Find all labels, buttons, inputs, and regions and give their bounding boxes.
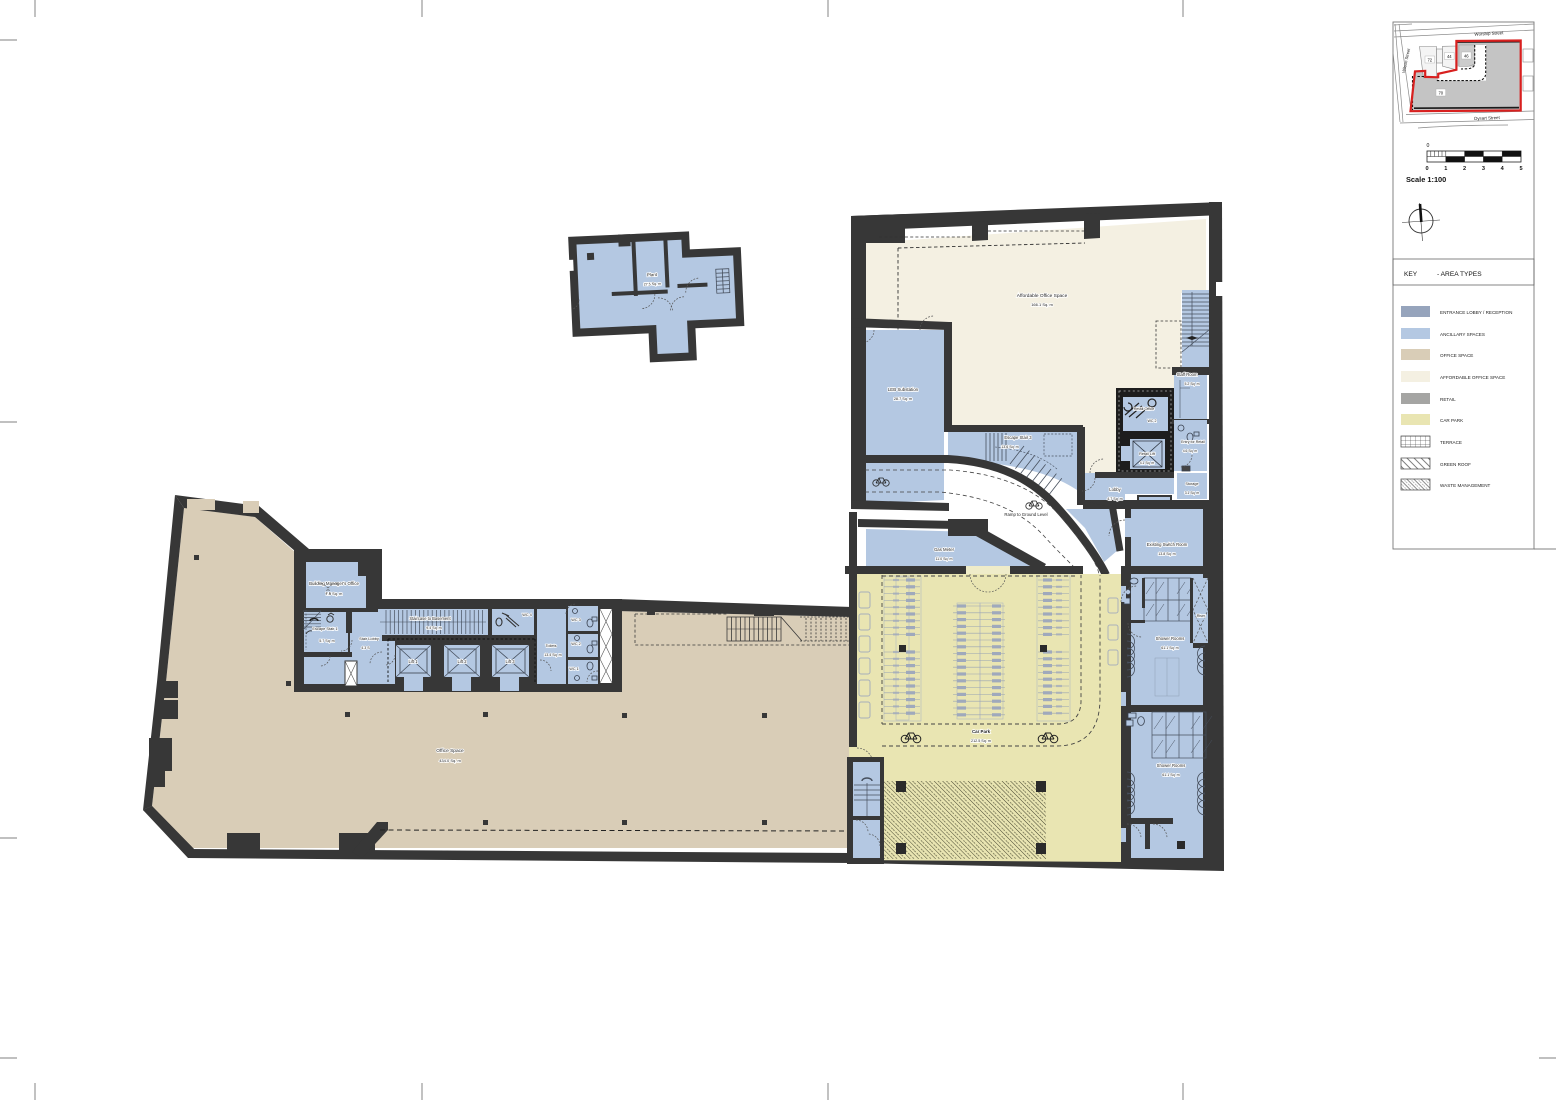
svg-text:70: 70: [1438, 91, 1443, 96]
svg-text:Lobby: Lobby: [1109, 487, 1121, 492]
svg-text:9.4 Sq. m: 9.4 Sq. m: [426, 626, 441, 630]
svg-text:AFFORDABLE OFFICE SPACE: AFFORDABLE OFFICE SPACE: [1440, 375, 1505, 380]
svg-text:28.7 Sq. m: 28.7 Sq. m: [894, 397, 912, 401]
svg-text:CAR PARK: CAR PARK: [1440, 418, 1464, 423]
svg-text:0: 0: [1427, 143, 1430, 149]
svg-text:WC 1: WC 1: [569, 667, 579, 671]
svg-text:Stair Lobby: Stair Lobby: [359, 636, 379, 641]
svg-text:0: 0: [1425, 166, 1428, 172]
svg-text:Retail Office: Retail Office: [1134, 407, 1155, 411]
svg-text:LEB Substation: LEB Substation: [888, 387, 919, 392]
svg-text:Existing Switch Room: Existing Switch Room: [1147, 542, 1188, 547]
svg-text:Escape Stair 3: Escape Stair 3: [1004, 435, 1032, 440]
svg-text:61.1 Sq. m: 61.1 Sq. m: [1161, 646, 1178, 650]
svg-text:Entry for Retail: Entry for Retail: [1181, 440, 1205, 444]
svg-text:Office Space: Office Space: [436, 748, 464, 754]
svg-text:Shower Rooms: Shower Rooms: [1156, 636, 1185, 641]
svg-text:13.8 Sq. m: 13.8 Sq. m: [1158, 552, 1175, 556]
svg-text:61.1 Sq. m: 61.1 Sq. m: [1162, 773, 1179, 777]
svg-text:OFFICE SPACE: OFFICE SPACE: [1440, 353, 1473, 358]
svg-text:13.6 Sq. m: 13.6 Sq. m: [1001, 445, 1018, 449]
svg-text:434.0 Sq. m: 434.0 Sq. m: [439, 758, 461, 763]
svg-text:Plant: Plant: [647, 272, 658, 277]
svg-text:166.1 Sq. m: 166.1 Sq. m: [1031, 302, 1053, 307]
svg-text:3: 3: [1482, 166, 1485, 172]
svg-text:4.1 Sq. m: 4.1 Sq. m: [1140, 461, 1155, 465]
svg-text:Escape Stair 1: Escape Stair 1: [312, 626, 337, 631]
svg-text:- AREA TYPES: - AREA TYPES: [1437, 271, 1482, 278]
svg-text:KEY: KEY: [1404, 271, 1418, 278]
svg-text:46: 46: [1464, 54, 1469, 59]
svg-text:WC 4: WC 4: [522, 613, 532, 617]
svg-text:5: 5: [1519, 166, 1522, 172]
svg-text:Toilets: Toilets: [545, 643, 556, 648]
svg-text:Riser: Riser: [1197, 614, 1206, 618]
svg-text:Car Park: Car Park: [972, 729, 991, 734]
svg-text:Lift 2: Lift 2: [457, 659, 467, 664]
svg-text:Shower Rooms: Shower Rooms: [1157, 763, 1186, 768]
svg-text:4.6 Sq. m: 4.6 Sq. m: [1183, 449, 1198, 453]
svg-text:27.5 Sq. m: 27.5 Sq. m: [644, 282, 662, 287]
svg-text:Ramp to Ground Level: Ramp to Ground Level: [1004, 512, 1047, 517]
svg-text:212.5 Sq. m: 212.5 Sq. m: [971, 739, 991, 743]
svg-text:Storage: Storage: [1185, 482, 1198, 486]
svg-text:Retail Lift: Retail Lift: [1139, 452, 1156, 456]
svg-text:Scale 1:100: Scale 1:100: [1406, 175, 1446, 184]
svg-text:ANCILLARY SPACES: ANCILLARY SPACES: [1440, 332, 1485, 337]
svg-text:GREEN ROOF: GREEN ROOF: [1440, 462, 1471, 467]
svg-text:3.1 Sq. m: 3.1 Sq. m: [1185, 491, 1200, 495]
svg-text:44: 44: [1447, 54, 1452, 59]
svg-text:WC 2: WC 2: [1148, 419, 1157, 423]
svg-text:4.7 Sq. m: 4.7 Sq. m: [1107, 497, 1122, 501]
svg-text:13.4 Sq. m: 13.4 Sq. m: [544, 653, 561, 657]
svg-text:11.0 Sq. m: 11.0 Sq. m: [935, 557, 952, 561]
svg-text:72: 72: [1427, 58, 1432, 63]
svg-text:WASTE MANAGEMENT: WASTE MANAGEMENT: [1440, 483, 1491, 488]
svg-text:RETAIL: RETAIL: [1440, 397, 1456, 402]
svg-text:TERRACE: TERRACE: [1440, 440, 1462, 445]
svg-text:Staircase to Basement: Staircase to Basement: [409, 616, 451, 621]
svg-text:WC 2: WC 2: [571, 642, 581, 646]
svg-text:Lift 1: Lift 1: [408, 659, 418, 664]
svg-text:Lift 3: Lift 3: [505, 659, 515, 664]
svg-text:1: 1: [1444, 166, 1447, 172]
svg-text:Dysart Street: Dysart Street: [1474, 115, 1501, 121]
svg-text:2: 2: [1463, 166, 1466, 172]
svg-text:Affordable Office Space: Affordable Office Space: [1017, 293, 1068, 299]
svg-text:7.5 Sq. m: 7.5 Sq. m: [326, 591, 343, 596]
svg-text:WC 3: WC 3: [571, 618, 581, 622]
svg-text:Staff Room: Staff Room: [1177, 372, 1198, 377]
svg-text:5.2 Sq. m: 5.2 Sq. m: [1185, 382, 1200, 386]
svg-text:5.7 Sq. m: 5.7 Sq. m: [319, 639, 334, 643]
svg-text:ENTRANCE LOBBY / RECEPTION: ENTRANCE LOBBY / RECEPTION: [1440, 310, 1512, 315]
svg-text:Gas Meter: Gas Meter: [934, 547, 955, 552]
